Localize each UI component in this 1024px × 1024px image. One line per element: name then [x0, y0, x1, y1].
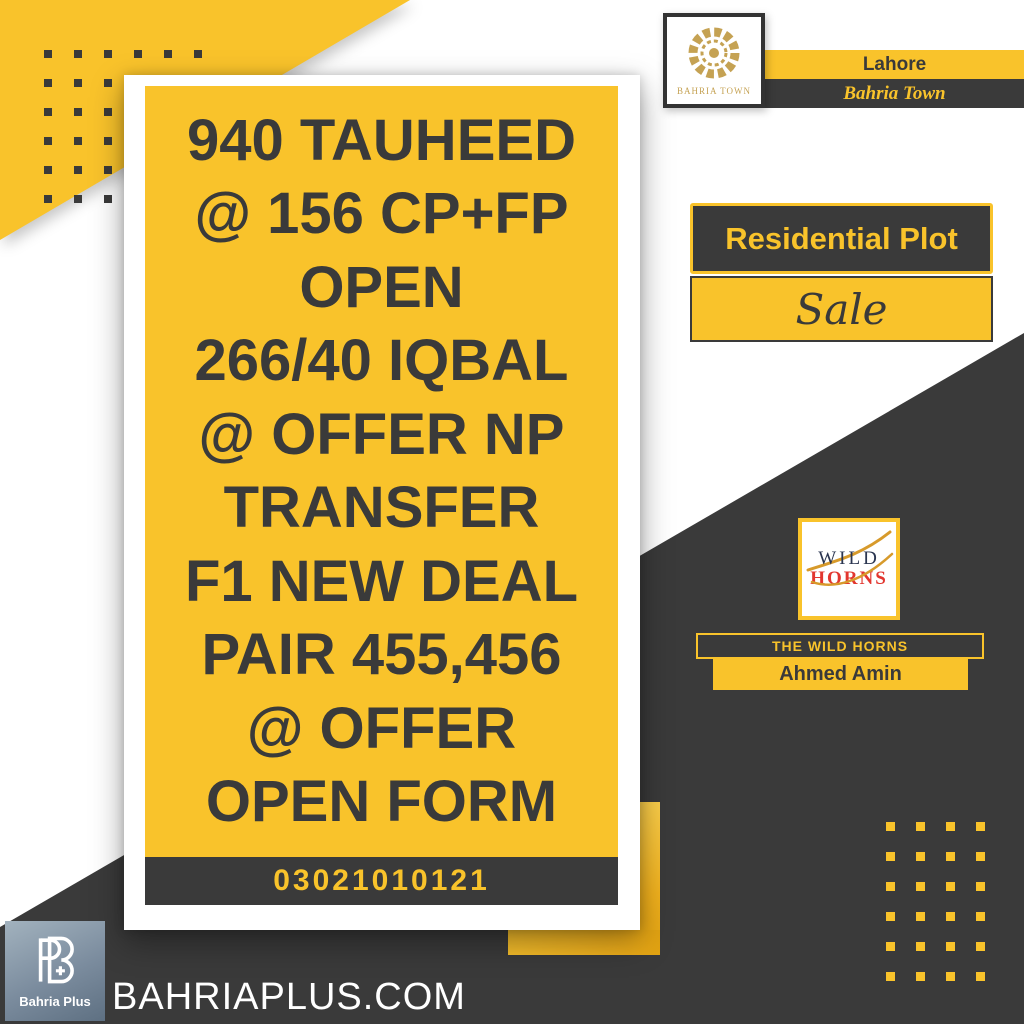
listing-line: 940 TAUHEED: [187, 112, 576, 170]
listing-line: @ OFFER NP: [199, 406, 565, 464]
phone-number: 03021010121: [273, 864, 490, 898]
listing-line: PAIR 455,456: [201, 626, 561, 684]
svg-text:WILD: WILD: [818, 548, 880, 569]
website-text: BAHRIAPLUS.COM: [112, 976, 466, 1019]
listing-line: OPEN: [299, 259, 463, 317]
dot-grid-bottom-right: [886, 822, 985, 981]
listing-line: TRANSFER: [224, 479, 540, 537]
bahria-town-logo-caption: BAHRIA TOWN: [677, 86, 751, 96]
city-bar: Lahore: [765, 50, 1024, 79]
category-label: Residential Plot: [725, 221, 958, 257]
brand-label: Bahria Town: [843, 83, 945, 105]
bahria-town-logo-box: BAHRIA TOWN: [663, 13, 765, 108]
category-box: Residential Plot: [690, 203, 993, 274]
phone-strip: 03021010121: [145, 857, 618, 905]
agent-name: Ahmed Amin: [779, 663, 902, 686]
bahria-town-medallion-icon: [687, 26, 741, 85]
bahria-plus-monogram-icon: [28, 933, 82, 992]
agency-name: THE WILD HORNS: [772, 638, 908, 654]
card-accent-horizontal: [508, 930, 660, 955]
agency-name-bar: THE WILD HORNS: [696, 633, 984, 659]
wild-horns-logo-icon: WILD HORNS: [802, 520, 896, 619]
listing-line: @ 156 CP+FP: [194, 185, 568, 243]
listing-card: 940 TAUHEED @ 156 CP+FP OPEN 266/40 IQBA…: [124, 75, 640, 930]
listing-line: @ OFFER: [247, 700, 516, 758]
deal-type-box: Sale: [690, 276, 993, 342]
wild-horns-logo-box: WILD HORNS: [798, 518, 900, 620]
svg-text:HORNS: HORNS: [810, 568, 888, 589]
bahria-plus-logo-box: Bahria Plus: [5, 921, 105, 1021]
city-label: Lahore: [863, 54, 926, 76]
poster-canvas: 940 TAUHEED @ 156 CP+FP OPEN 266/40 IQBA…: [0, 0, 1024, 1024]
listing-line: 266/40 IQBAL: [195, 332, 569, 390]
deal-type-label: Sale: [795, 285, 887, 334]
listing-text-panel: 940 TAUHEED @ 156 CP+FP OPEN 266/40 IQBA…: [145, 86, 618, 857]
bahria-plus-logo-caption: Bahria Plus: [19, 994, 91, 1009]
brand-bar: Bahria Town: [765, 79, 1024, 108]
listing-line: F1 NEW DEAL: [185, 553, 578, 611]
listing-line: OPEN FORM: [206, 773, 557, 831]
agent-name-bar: Ahmed Amin: [713, 659, 968, 690]
